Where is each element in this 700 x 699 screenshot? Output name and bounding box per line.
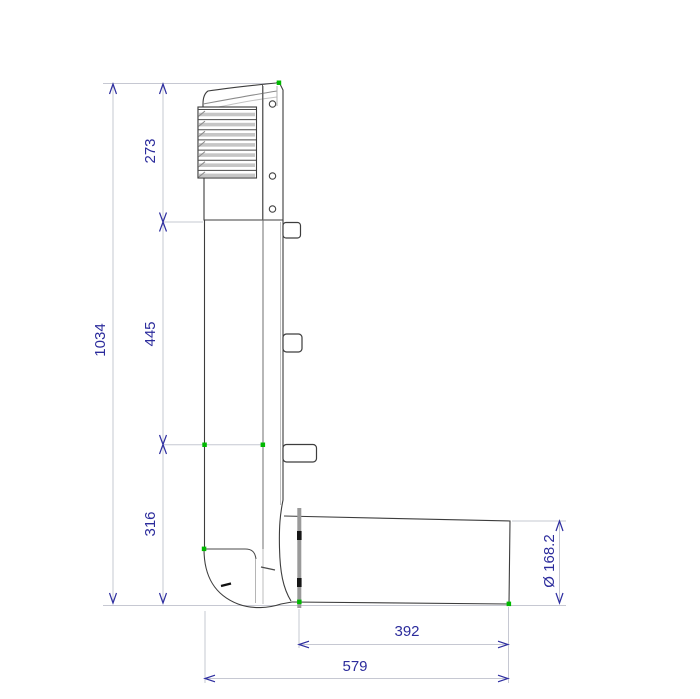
louver-frame — [198, 107, 257, 178]
outlet-pipe — [284, 508, 510, 608]
drawing-canvas: 1034 273 445 316 392 579 Ø 168.2 — [0, 0, 700, 699]
dim-label-outlet-length: 392 — [377, 624, 437, 640]
wall-flange — [297, 508, 302, 608]
pipe-elbow — [204, 549, 292, 608]
dimension-lines — [103, 84, 566, 684]
elbow-mark — [221, 584, 231, 587]
screw-hole-icon — [269, 101, 275, 107]
flange-mark — [297, 531, 302, 540]
outlet-pipe-outline — [284, 516, 510, 604]
dim-label-section-top: 273 — [143, 116, 159, 186]
mounting-clip — [283, 334, 302, 352]
mounting-clip — [283, 445, 317, 463]
elbow-inner-seam — [204, 549, 256, 559]
flange-mark — [297, 578, 302, 587]
dim-label-total-height: 1034 — [93, 305, 109, 375]
mounting-clip — [283, 223, 301, 239]
snap-marker — [507, 602, 512, 607]
dim-label-outlet-diameter: Ø 168.2 — [542, 521, 558, 601]
snap-marker — [202, 547, 207, 552]
dimension-arrows — [110, 84, 564, 682]
dim-label-section-bottom: 316 — [143, 489, 159, 559]
dim-label-overall-width: 579 — [325, 659, 385, 675]
screw-hole-icon — [269, 173, 275, 179]
snap-marker — [297, 600, 302, 605]
flange-bar — [297, 508, 301, 608]
snap-marker — [277, 81, 282, 86]
snap-marker — [202, 443, 207, 448]
louver-grille — [198, 107, 257, 178]
dim-label-section-middle: 445 — [143, 299, 159, 369]
elbow-outer-curve — [204, 549, 292, 608]
snap-marker — [261, 443, 266, 448]
pipe-right-edge — [279, 220, 291, 601]
screw-hole-icon — [269, 206, 275, 212]
vent-cap — [198, 82, 283, 220]
